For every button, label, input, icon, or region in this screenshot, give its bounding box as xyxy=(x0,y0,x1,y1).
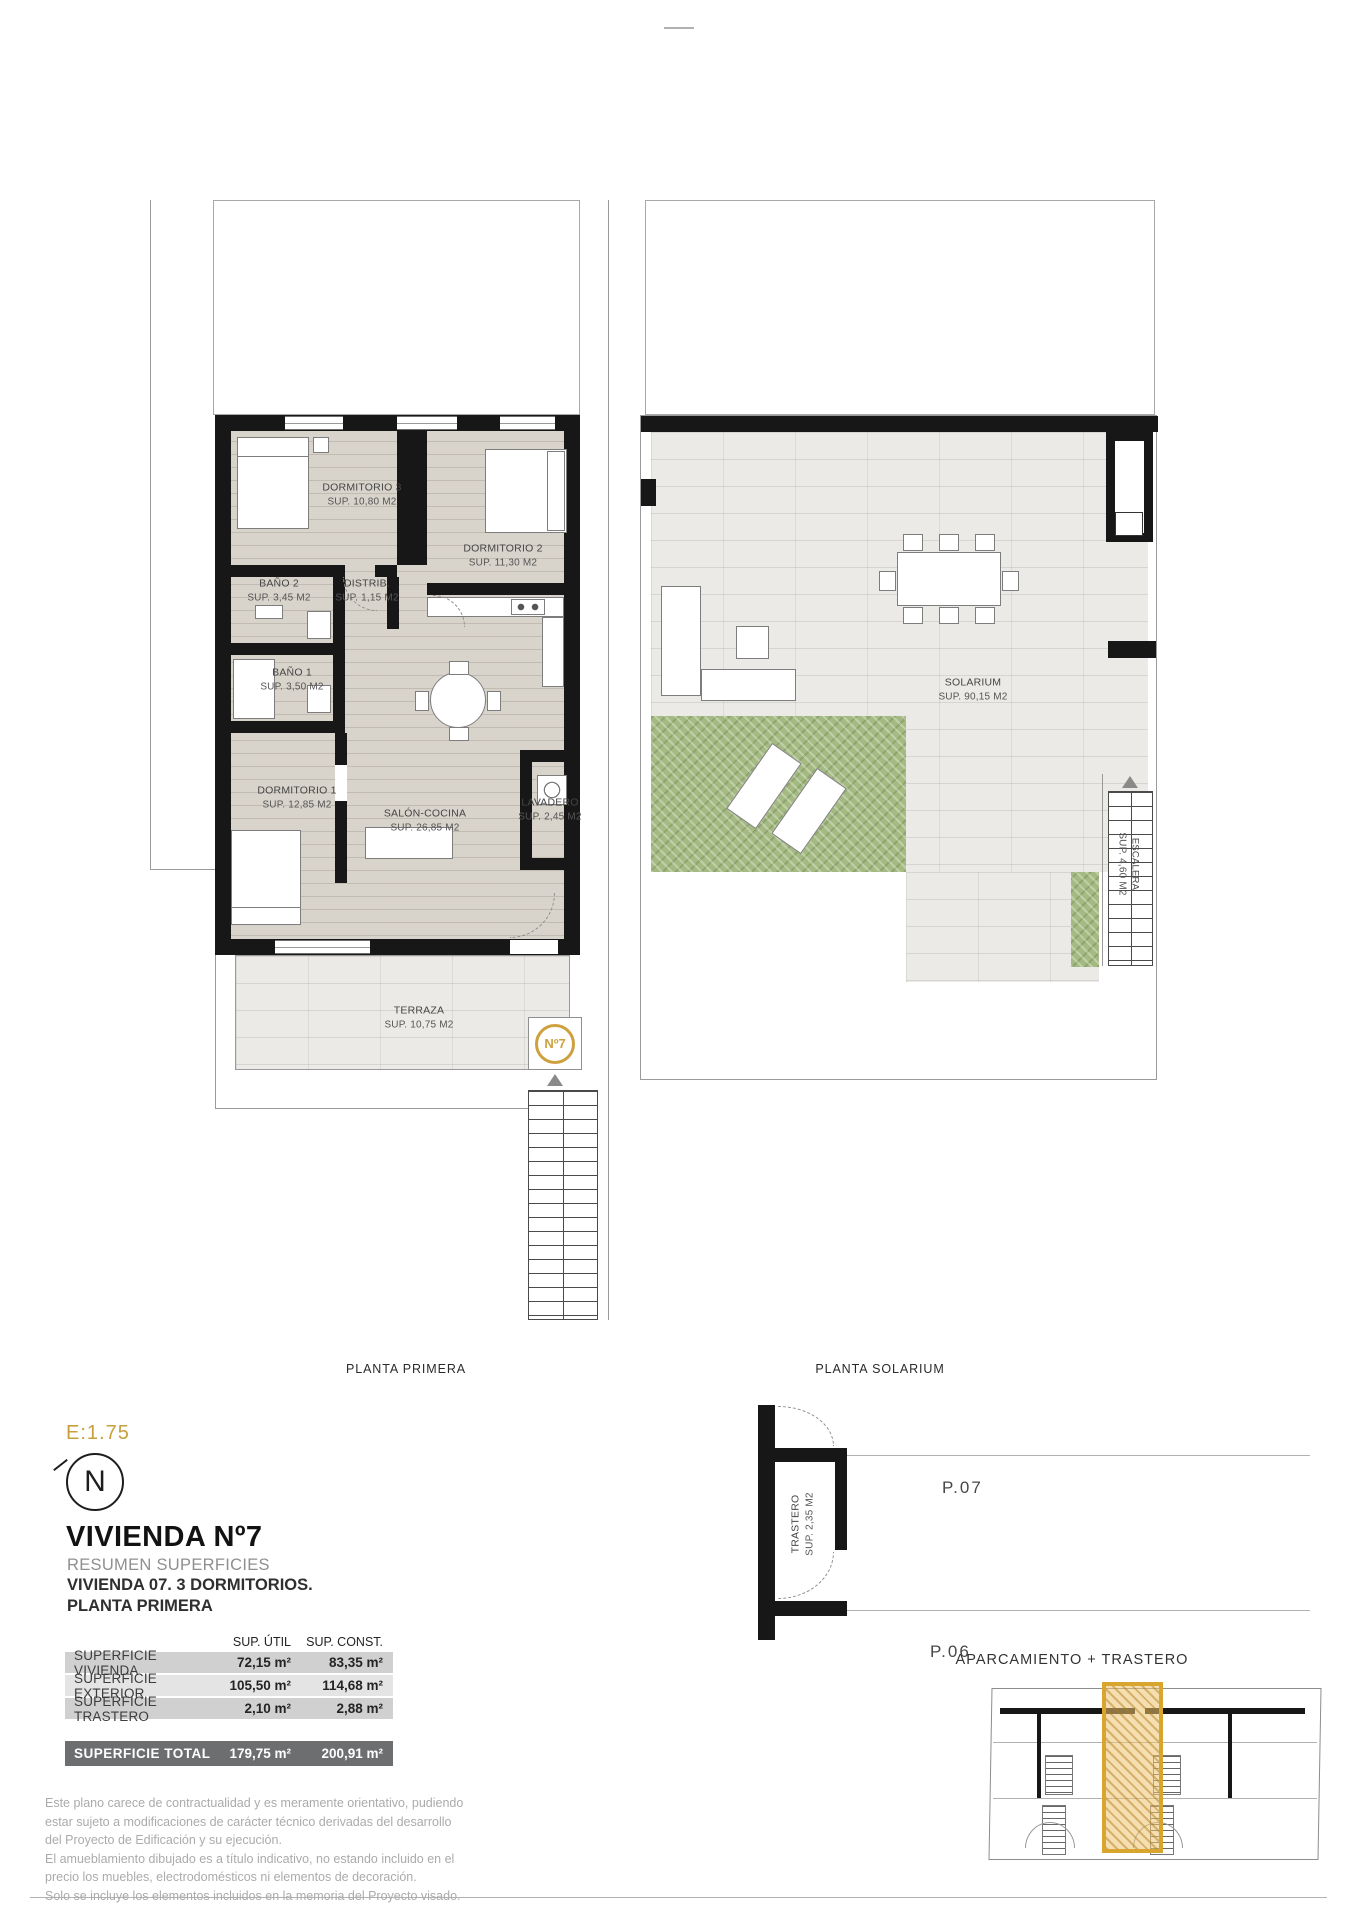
room-label-distribuidor: DISTRIB.SUP. 1,15 M2 xyxy=(335,578,398,605)
solarium-table-icon xyxy=(897,552,1001,606)
chair-icon xyxy=(939,534,959,551)
room-label-salon-cocina: SALÓN-COCINASUP. 26,85 M2 xyxy=(384,808,466,835)
site-key-plan xyxy=(985,1680,1330,1895)
window-icon xyxy=(500,416,555,430)
room-label-terraza: TERRAZASUP. 10,75 M2 xyxy=(384,1005,453,1032)
unit-number-ring: Nº7 xyxy=(535,1024,575,1064)
side-table-icon xyxy=(736,626,769,659)
apartment-floor: DORMITORIO 3SUP. 10,80 M2 DORMITORIO 2SU… xyxy=(215,415,580,955)
unit-number-badge: Nº7 xyxy=(528,1017,582,1070)
chair-icon xyxy=(1002,571,1019,591)
wall xyxy=(775,1448,847,1462)
table-total-row: SUPERFICIE TOTAL 179,75 m² 200,91 m² xyxy=(65,1741,393,1766)
terrace-door-icon xyxy=(275,940,370,954)
room-label-dormitorio-3: DORMITORIO 3SUP. 10,80 M2 xyxy=(322,482,401,509)
window-icon xyxy=(285,416,343,430)
col-header-sup-util: SUP. ÚTIL xyxy=(211,1635,299,1649)
unit-number-label: Nº7 xyxy=(544,1036,565,1051)
wall xyxy=(641,479,656,506)
wall xyxy=(520,858,580,870)
wall xyxy=(231,721,345,733)
wall xyxy=(427,583,564,595)
chair-icon xyxy=(903,534,923,551)
plan-caption-solarium: PLANTA SOLARIUM xyxy=(815,1362,944,1376)
unit-7-highlight xyxy=(1102,1682,1163,1853)
roof-outline xyxy=(645,200,1155,415)
kitchen-counter-icon xyxy=(542,617,564,687)
room-label-lavadero: LAVADEROSUP. 2,45 M2 xyxy=(518,797,581,824)
north-arrow-icon: N xyxy=(66,1453,124,1511)
chair-icon xyxy=(449,661,469,675)
nightstand-icon xyxy=(313,437,329,453)
page-subtitle: RESUMEN SUPERFICIES xyxy=(67,1556,270,1575)
wall xyxy=(1037,1710,1041,1798)
door-opening xyxy=(335,765,347,801)
scale-label: E:1.75 xyxy=(66,1422,130,1445)
room-label-trastero: TRASTEROSUP. 2,35 M2 xyxy=(790,1492,817,1555)
wall xyxy=(1145,1708,1305,1714)
floor-plan-sheet: DORMITORIO 3SUP. 10,80 M2 DORMITORIO 2SU… xyxy=(0,0,1357,1920)
exterior-stairs xyxy=(528,1090,598,1320)
stove-icon xyxy=(511,599,545,615)
roof-outline xyxy=(213,200,580,415)
solarium-property: SOLARIUMSUP. 90,15 M2 ESCALERASUP. 4,60 … xyxy=(640,415,1157,1080)
pillow-icon xyxy=(547,451,565,531)
chair-icon xyxy=(449,727,469,741)
wall xyxy=(215,431,231,939)
terraza-floor: TERRAZASUP. 10,75 M2 xyxy=(235,955,570,1070)
sofa-icon xyxy=(701,669,796,701)
chair-icon xyxy=(975,534,995,551)
door-arc xyxy=(510,893,555,938)
parking-divider-line xyxy=(847,1455,1310,1456)
wall xyxy=(231,643,345,655)
wall xyxy=(520,750,580,762)
disclaimer-text: Este plano carece de contractualidad y e… xyxy=(45,1794,469,1905)
property-line xyxy=(215,1108,529,1109)
parking-divider-line xyxy=(847,1610,1310,1611)
chair-icon xyxy=(975,607,995,624)
property-line xyxy=(150,200,151,870)
pillow-icon xyxy=(231,907,301,925)
parking-label-p07: P.07 xyxy=(942,1478,983,1498)
table-row: SUPERFICIE TRASTERO 2,10 m² 2,88 m² xyxy=(65,1698,393,1719)
chair-icon xyxy=(487,691,501,711)
col-header-sup-const: SUP. CONST. xyxy=(299,1635,393,1649)
wall xyxy=(375,565,397,577)
room-label-bano-1: BAÑO 1SUP. 3,50 M2 xyxy=(260,667,323,694)
plan-planta-solarium: SOLARIUMSUP. 90,15 M2 ESCALERASUP. 4,60 … xyxy=(640,200,1170,1385)
chair-icon xyxy=(415,691,429,711)
dwelling-description: VIVIENDA 07. 3 DORMITORIOS. xyxy=(67,1576,313,1595)
wall xyxy=(835,1462,847,1550)
site-stairs-icon xyxy=(1045,1755,1073,1795)
toilet-icon xyxy=(307,611,331,639)
room-label-solarium: SOLARIUMSUP. 90,15 M2 xyxy=(938,677,1007,704)
door-arc xyxy=(778,1552,834,1599)
room-label-bano-2: BAÑO 2SUP. 3,45 M2 xyxy=(247,578,310,605)
dining-table-icon xyxy=(430,672,486,728)
chair-icon xyxy=(879,571,896,591)
room-label-dormitorio-2: DORMITORIO 2SUP. 11,30 M2 xyxy=(463,543,542,570)
page-title: VIVIENDA Nº7 xyxy=(66,1521,262,1554)
chair-icon xyxy=(939,607,959,624)
sheet-top-tick xyxy=(664,27,694,29)
property-line xyxy=(150,869,216,870)
wall xyxy=(641,416,1158,432)
floor-description: PLANTA PRIMERA xyxy=(67,1597,213,1616)
wall xyxy=(231,565,341,577)
stairs-arrow-icon xyxy=(547,1074,563,1086)
sofa-icon xyxy=(661,586,701,696)
property-line xyxy=(608,200,609,1320)
wall xyxy=(758,1601,847,1616)
north-letter: N xyxy=(84,1465,106,1499)
utility-fixture-icon xyxy=(1115,512,1143,536)
door-arc xyxy=(778,1406,834,1446)
north-tick xyxy=(53,1459,68,1471)
stairs-arrow-icon xyxy=(1122,776,1138,788)
plan-planta-primera: DORMITORIO 3SUP. 10,80 M2 DORMITORIO 2SU… xyxy=(150,200,620,1385)
room-label-escalera: ESCALERASUP. 4,60 M2 xyxy=(1115,832,1140,895)
surface-summary-table: SUP. ÚTIL SUP. CONST. SUPERFICIE VIVIEND… xyxy=(65,1632,393,1766)
stair-rail-line xyxy=(1102,774,1103,966)
siteplan-caption: APARCAMIENTO + TRASTERO xyxy=(956,1652,1189,1668)
plan-caption-primera: PLANTA PRIMERA xyxy=(346,1362,466,1376)
wall xyxy=(335,733,347,883)
lawn-area xyxy=(1071,872,1099,967)
pillow-icon xyxy=(237,437,309,457)
sink-icon xyxy=(255,605,283,619)
chair-icon xyxy=(903,607,923,624)
entrance-opening xyxy=(510,940,558,954)
window-icon xyxy=(397,416,457,430)
room-label-dormitorio-1: DORMITORIO 1SUP. 12,85 M2 xyxy=(257,785,336,812)
wall xyxy=(1108,641,1156,658)
wall xyxy=(1228,1710,1232,1798)
